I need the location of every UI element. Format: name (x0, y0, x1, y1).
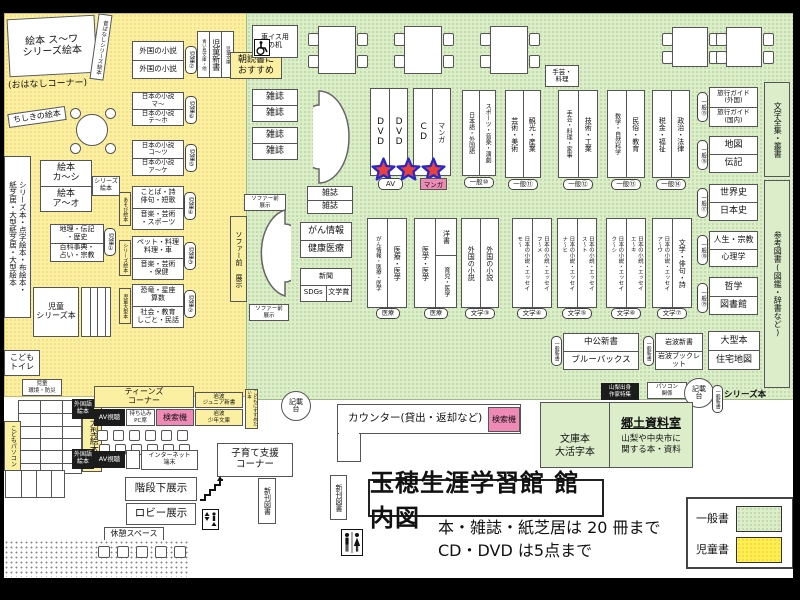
wheelchair-icon (254, 39, 270, 56)
legend: 一般書 児童書 (686, 497, 794, 569)
table-1 (308, 26, 366, 74)
jido-ogata-strip: 児童大型本 (119, 288, 131, 324)
counter-stub (337, 433, 361, 462)
ippan18-badge: 一般⑱ (697, 235, 708, 265)
chair (394, 33, 405, 46)
pet-box: ペット・料理料理・車音楽・芸術・保健 (132, 236, 184, 280)
kodomo-susume-strip: こどもにすすめたい本 (245, 389, 258, 429)
chair (117, 546, 129, 558)
chizu-denki-box: 地図伝記 (709, 136, 758, 173)
sekaishi-box: 世界史日本史 (709, 184, 758, 221)
letterbox-right (793, 0, 800, 600)
chair (357, 55, 368, 68)
chair (763, 33, 774, 46)
iryo-badge-b: 医療 (424, 308, 448, 319)
ippan-shinsho-badge3: 一般新書 (712, 385, 723, 413)
chair (129, 430, 140, 441)
shelf-slats (81, 287, 111, 337)
bungaku4-shelf: 日本の小説・エッセイモ〜日本の小説・エッセイフ〜メ (512, 218, 552, 308)
kensakuki-pink2: 検索機 (488, 407, 520, 432)
iwanami-shonen-box: 岩波少年文庫 (195, 409, 243, 426)
gaikokugo-ehon-dark1: 外国語絵本 (72, 399, 94, 419)
series-ehon-strip2: シリーズ絵本 (119, 240, 131, 276)
zasshi-box1: 雑誌雑誌 (252, 89, 298, 122)
bungaku3-badge: 文学③ (465, 308, 495, 319)
elevator-icon (202, 509, 219, 530)
yamanashi-sakka-dark: 山梨出身作家特集 (601, 383, 639, 400)
library-floor-map: 絵本 ス〜ワシリーズ絵本(おはなしコーナー)昔ばなしシリーズ絵本ちしきの絵本シリ… (0, 0, 800, 600)
chair (529, 33, 540, 46)
chair (443, 55, 454, 68)
bungaku-zenshu-strip: 文学全集・叢書 (764, 82, 790, 177)
ippan13-shelf: 数学・自然科学民俗・教育 (607, 90, 645, 178)
small-white-box (126, 450, 140, 469)
ogata-jutaku-box: 大型本住宅地図 (708, 331, 760, 370)
chair (155, 546, 167, 558)
gan-kenko-box: がん情報健康医療 (300, 222, 352, 258)
bungaku3-shelf: 外国の小説外国の小説 (461, 218, 499, 308)
loan-limit-note-books: 本・雑誌・紙芝居は 20 冊まで (438, 514, 661, 538)
chair (662, 51, 673, 64)
chair (716, 51, 727, 64)
table-2 (394, 26, 452, 74)
round-table (70, 108, 114, 152)
rest-chair-row (98, 546, 193, 556)
ryoko-guide-box: 旅行ガイド(外国)旅行ガイド(国内) (709, 87, 758, 127)
iryo-shelf-a: がん情報・医療・医学医療・医学 (367, 218, 407, 308)
chair (480, 55, 491, 68)
jido-shinsho-box: 青い鳥文庫・他児童新書児童文庫 (197, 31, 234, 78)
jido5-badge: 児童⑤ (185, 144, 197, 172)
tetsugaku-box: 哲学図書館 (709, 277, 758, 315)
kisaidai-circle2: 記載台 (281, 391, 311, 421)
ippan-shinsho-badge1: 一般新書 (551, 336, 562, 366)
ippan15-badge: 一般⑮ (697, 92, 708, 122)
loan-limit-note-media: CD・DVD は5点まで (438, 537, 592, 561)
iwanami-junior-box: 岩波ジュニア新書 (195, 392, 243, 408)
chair (97, 430, 108, 441)
sofa-front-strip: ソファー前 展示 (230, 216, 247, 302)
chair (105, 143, 116, 154)
kamishibai-strip: シリーズ本・点字絵本・布絵本・紙芝居・大型紙芝居・大型絵本 (4, 156, 31, 318)
zasshi-box3: 雑誌雑誌 (307, 186, 353, 214)
table-sq-2 (716, 27, 772, 67)
iwanami-shinsho-box: 岩波新書岩波ブックレット (655, 333, 703, 370)
chair (70, 143, 81, 154)
ippan-shinsho-badge2: 一般新書 (643, 336, 654, 366)
iryo-shelf-b: 医学・医学洋書育児・医学 (414, 218, 457, 308)
chair (308, 55, 319, 68)
jido1-badge: 児童① (104, 228, 116, 256)
kensakuki-pink1: 検索機 (156, 409, 194, 426)
chair (98, 546, 110, 558)
chiri-box: 地理・伝記・歴史百科事典・占い・宗教 (50, 224, 104, 262)
chair (763, 51, 774, 64)
jido3-badge: 児童③ (184, 242, 196, 270)
jinsei-box: 人生・宗教心理学 (709, 231, 758, 267)
legend-general-label: 一般書 (696, 505, 729, 531)
chair (105, 108, 116, 119)
jido-series-box: 児童シリーズ本 (33, 287, 79, 337)
jido-kankyo-badge: 児童環境・防災 (22, 379, 62, 396)
series-bon-label: シリーズ本 (724, 388, 768, 400)
shinkan-strip2: 新刊図書 (330, 475, 347, 520)
chair (662, 33, 673, 46)
toilet-icon (341, 529, 363, 556)
mochikomi-pc-box: 持ち込みPC席 (126, 409, 155, 426)
chair (136, 546, 148, 558)
bungaku7-badge: 文学⑦ (657, 308, 687, 319)
ippan12-shelf: 手芸・料理・家事技術・工業 (558, 90, 598, 178)
chuko-box: 中公新書ブルーバックス (563, 333, 639, 370)
kodomo-toilet-box: こどもトイレ (4, 350, 40, 376)
legend-general-swatch (736, 506, 782, 532)
chair (161, 430, 172, 441)
table-3 (480, 26, 538, 74)
chair (70, 108, 81, 119)
manga-badge: マンガ (420, 178, 447, 190)
chair (177, 430, 188, 441)
table (672, 27, 708, 67)
bungaku6-shelf: 日本の小説・エッセイク〜シ日本の小説・エッセイエ〜キ (606, 218, 646, 308)
crescent-top (313, 85, 353, 189)
chair (145, 430, 156, 441)
counter-patch (339, 431, 359, 436)
chair (480, 33, 491, 46)
letterbox-bottom (0, 578, 800, 600)
kyodo-shiryoshitsu-section: 郷土資料室山梨や中央市に関する本・資料 (610, 403, 692, 467)
jido4-badge: 児童④ (184, 192, 196, 220)
bunkobon-section: 文庫本大活字本 (541, 403, 610, 467)
nihon-shosetsu-box1: 日本の小説マ〜日本の小説テ〜ホ (132, 92, 184, 126)
sanko-tosho-strip: 参考図書(図鑑・辞書など) (764, 180, 790, 388)
gaikokugo-ehon-dark2: 外国語絵本 (72, 449, 94, 469)
jido7-badge: 児童⑦ (185, 46, 197, 74)
chair (113, 430, 124, 441)
letterbox-top (0, 0, 800, 13)
shinkan-strip1: 新刊図書 (258, 478, 276, 524)
chair (443, 33, 454, 46)
ippan14-shelf: 税金・福祉政治・法律 (652, 90, 690, 178)
ippan10-badge: 一般⑩ (464, 177, 494, 188)
av-badge: AV (378, 178, 403, 190)
kodomo-pc-strip: こどもパソコン (4, 421, 21, 471)
bench (5, 470, 65, 498)
chair (308, 33, 319, 46)
chair (716, 33, 727, 46)
shugei-tag: 手芸・料理 (545, 65, 579, 87)
jido2-badge: 児童② (184, 290, 196, 318)
legend-children-label: 児童書 (696, 536, 729, 562)
ippan10-shelf: 日本語・外国語スポーツ・音楽・演劇 (462, 90, 496, 176)
kaidan-box: 階段下展示 (125, 477, 197, 501)
ippan11-shelf: 芸術・美術観光・産業 (505, 90, 541, 178)
kyoryu-box: 恐竜・星座算数社会・教育しごと・民話 (132, 284, 184, 328)
lobby-box: ロビー展示 (126, 503, 196, 525)
legend-children-swatch (736, 537, 782, 563)
teens-chair-row1 (97, 430, 193, 439)
av-shicho-dark1: AV視聴 (94, 409, 125, 426)
jido6-badge: 児童⑥ (185, 96, 197, 124)
kyodo-shiryo-box: 文庫本大活字本郷土資料室山梨や中央市に関する本・資料 (540, 402, 693, 468)
chair (394, 55, 405, 68)
map-title: 玉穂生涯学習館 館内図 (368, 479, 604, 517)
bungaku4-badge: 文学④ (517, 308, 547, 319)
bungaku5-shelf: 日本の小説・エッセイナ〜ヒ日本の小説・エッセイス〜ト (557, 218, 597, 308)
kotoba-box: ことば・詩俳句・短歌音楽・芸術・スポーツ (132, 186, 184, 230)
table (490, 26, 528, 74)
ippan12-badge: 一般⑫ (563, 179, 593, 190)
zasshi-box2: 雑誌雑誌 (252, 127, 298, 160)
ehon-ka-shi-box: 絵本カ〜シ絵本ア〜オ (40, 160, 92, 212)
round-table-top (76, 114, 108, 146)
ippan11-badge: 一般⑪ (508, 179, 538, 190)
ippan17-badge: 一般⑰ (697, 188, 708, 218)
stairs-icon (198, 474, 224, 502)
bungaku7-shelf: 日本の小説・エッセイア〜ウ文学・俳句・詩 (652, 218, 692, 308)
av-shicho-dark2: AV視聴 (94, 451, 125, 468)
shimbun-box: 新聞SDGs文学賞 (300, 268, 352, 302)
bungaku5-badge: 文学⑤ (562, 308, 592, 319)
nihon-shosetsu-box2: 日本の小説コ〜ツ日本の小説ア〜ケ (132, 140, 184, 176)
iryo-badge-a: 医療 (376, 308, 400, 319)
series-ehon-tag: シリーズ絵本 (92, 176, 120, 196)
table-sq-1 (662, 27, 718, 67)
table (726, 27, 762, 67)
ippan16-badge: 一般⑯ (697, 140, 708, 170)
ippan13-badge: 一般⑬ (611, 179, 641, 190)
ehon-su-wa-box: 絵本 ス〜ワシリーズ絵本 (7, 15, 98, 78)
gaikoku-shosetsu-jido-box: 外国の小説外国の小説 (132, 41, 184, 79)
pc-kankei-box: パソコン関係 (647, 382, 687, 399)
chair (529, 55, 540, 68)
kosodate-box: 子育て支援コーナー (217, 443, 293, 477)
crescent-bottom (249, 204, 291, 302)
asobi-ehon-strip: あそび絵本 (119, 192, 131, 226)
table (404, 26, 442, 74)
ippan14-badge: 一般⑭ (656, 179, 686, 190)
letterbox-left (0, 0, 4, 600)
bungaku6-badge: 文学⑥ (611, 308, 641, 319)
teens-corner-box: ティーンズコーナー (94, 386, 194, 408)
chair (174, 546, 186, 558)
sofa-front-badge2: ソファー前展示 (249, 304, 289, 321)
table (318, 26, 356, 74)
chair (357, 33, 368, 46)
ippan19-badge: 一般⑲ (697, 283, 708, 313)
internet-box: インターネット端末 (141, 450, 198, 470)
